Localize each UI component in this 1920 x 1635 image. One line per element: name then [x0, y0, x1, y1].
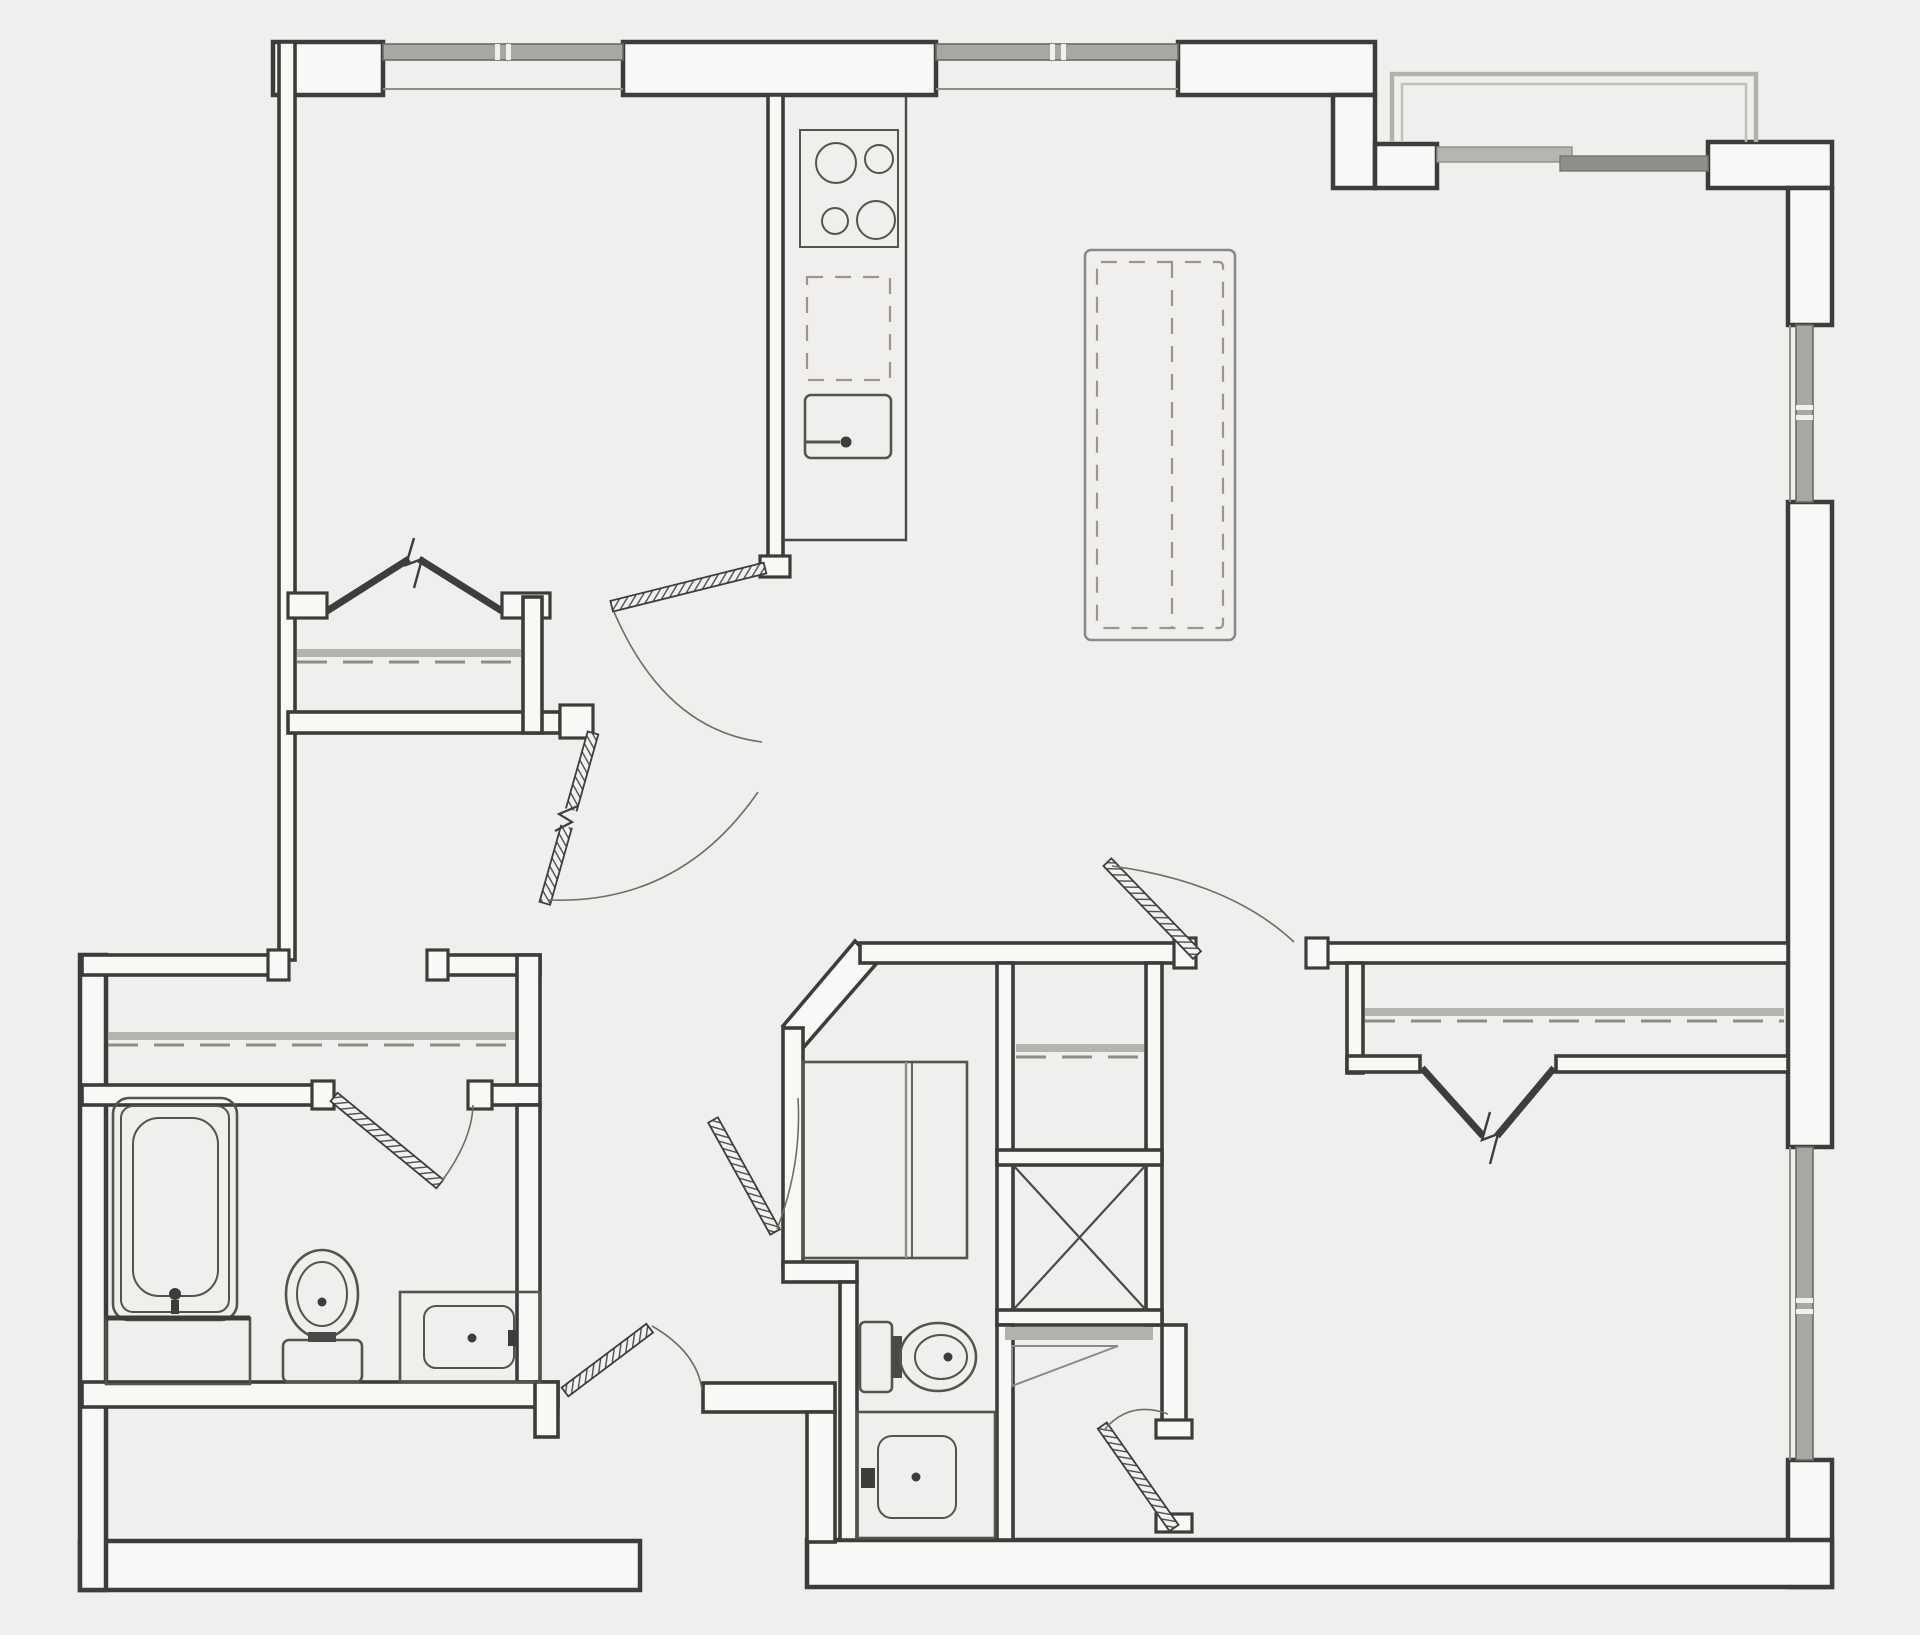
wall-bath2-west-lower [840, 1282, 857, 1540]
wall-bath2-jog [783, 1262, 857, 1282]
interior-walls [82, 95, 1788, 1542]
bathroom-1 [106, 1098, 540, 1384]
window-north-living [936, 44, 1178, 89]
bedroom2-closet-rod [1365, 1012, 1784, 1021]
bedroom1-closet-doors [327, 538, 502, 611]
bedroom2-closet-doors [1422, 1068, 1554, 1164]
burner-1 [816, 143, 856, 183]
bedroom1-closet-rod [297, 653, 521, 662]
wall-alcove-east [807, 1412, 835, 1542]
wall-bath1-step [535, 1382, 558, 1437]
faucet-icon [841, 437, 852, 448]
kitchen-counter [783, 95, 906, 540]
wall-east-mid [1788, 502, 1832, 1147]
wall-kitchen-divider [768, 95, 783, 560]
floor-plan-page [0, 0, 1920, 1635]
wall-top-jog-a [1178, 42, 1375, 95]
jamb-bedroom2-south-door-t [1156, 1420, 1192, 1438]
wall-top-jog-b [1333, 95, 1375, 188]
bedroom1-door-leaf [536, 731, 602, 906]
wall-south-left [80, 1541, 640, 1590]
wall-column-mid [997, 1150, 1162, 1165]
wall-column-west [997, 963, 1013, 1325]
utility-shaft [1005, 1165, 1153, 1386]
tub-faucet-icon [169, 1288, 181, 1300]
balcony-glass-door [1437, 147, 1708, 171]
wall-corner-ne [1708, 142, 1832, 188]
windows [383, 44, 1813, 1460]
closet2-door-split [1482, 1112, 1498, 1164]
cooktop [800, 130, 898, 247]
wall-hall-south [703, 1383, 835, 1412]
wall-closet1-east [523, 597, 542, 733]
wall-bath2-west-upper [783, 1028, 803, 1268]
jamb-closet-opening-r [427, 950, 448, 980]
wall-column-east [1146, 963, 1162, 1325]
jamb-closet-opening-l [268, 950, 289, 980]
wall-bath2-east-lower [997, 1325, 1013, 1540]
shaft-access-panel [1012, 1346, 1118, 1386]
wall-west-lower [80, 955, 106, 1590]
window-east-living [1790, 325, 1813, 502]
toilet-2 [860, 1322, 976, 1392]
bathroom1-door-arc [442, 1105, 473, 1181]
entry-door-leaf [562, 1324, 653, 1397]
sink1-faucet-icon [508, 1330, 518, 1346]
balcony-outline-inner [1402, 84, 1746, 142]
sink2-faucet-icon [861, 1468, 875, 1488]
wall-column-bottom [997, 1310, 1162, 1325]
wall-south-right [807, 1540, 1832, 1587]
sink1-drain [468, 1334, 477, 1343]
jamb-bath1-door-r [468, 1081, 492, 1109]
kitchen-sink [805, 395, 891, 458]
wall-top-jog-c [1375, 144, 1437, 188]
vanity-sink-2 [857, 1412, 995, 1538]
balcony [1392, 74, 1756, 142]
wall-east-upper [1788, 188, 1832, 325]
window-east-bedroom-2 [1790, 1147, 1813, 1460]
floor-plan-drawing [0, 0, 1920, 1635]
wall-west-bedroom1 [279, 42, 295, 960]
wall-bath1-east [517, 1105, 540, 1382]
tub-deck [106, 1318, 250, 1384]
kitchen-door-arc [614, 612, 762, 742]
wall-b2closet-south-b [1556, 1056, 1788, 1072]
walk-in-closet-rod [108, 1036, 515, 1045]
kitchen-island [1085, 250, 1235, 640]
linen-closet-rod [1016, 1048, 1144, 1057]
wall-closet-east [517, 955, 540, 1085]
wall-bedroom2-west [1162, 1325, 1186, 1430]
entry-door-arc [652, 1326, 702, 1390]
bathroom2-door-leaf [708, 1117, 780, 1234]
burner-2 [865, 145, 893, 173]
wall-bedroom1-south [288, 712, 560, 733]
toilet-1 [283, 1250, 362, 1382]
kitchen [783, 95, 906, 540]
wall-top-mid [623, 42, 936, 95]
window-north-bedroom-1 [383, 44, 623, 89]
bedroom1-door-arc [549, 792, 758, 900]
sink2-drain [912, 1473, 921, 1482]
shaft-access-track [1005, 1327, 1153, 1340]
wall-hall-north-a [860, 943, 1192, 963]
bathroom1-door-leaf [331, 1093, 444, 1188]
wall-hall-north-b [1310, 943, 1788, 963]
dishwasher [807, 277, 890, 380]
jamb-closet1-left [288, 593, 327, 618]
jamb-bedroom2-door-r [1306, 938, 1328, 968]
wall-closet-top-a [82, 955, 287, 975]
kitchen-door-leaf [610, 563, 766, 612]
wall-b2closet-south-a [1347, 1056, 1420, 1072]
wall-bath1-south [82, 1382, 558, 1407]
exterior-walls [80, 42, 1832, 1590]
shower-stall [803, 1062, 967, 1258]
jamb-bath1-door-l [312, 1081, 334, 1109]
burner-4 [857, 201, 895, 239]
burner-3 [822, 208, 848, 234]
bathtub [113, 1098, 237, 1320]
